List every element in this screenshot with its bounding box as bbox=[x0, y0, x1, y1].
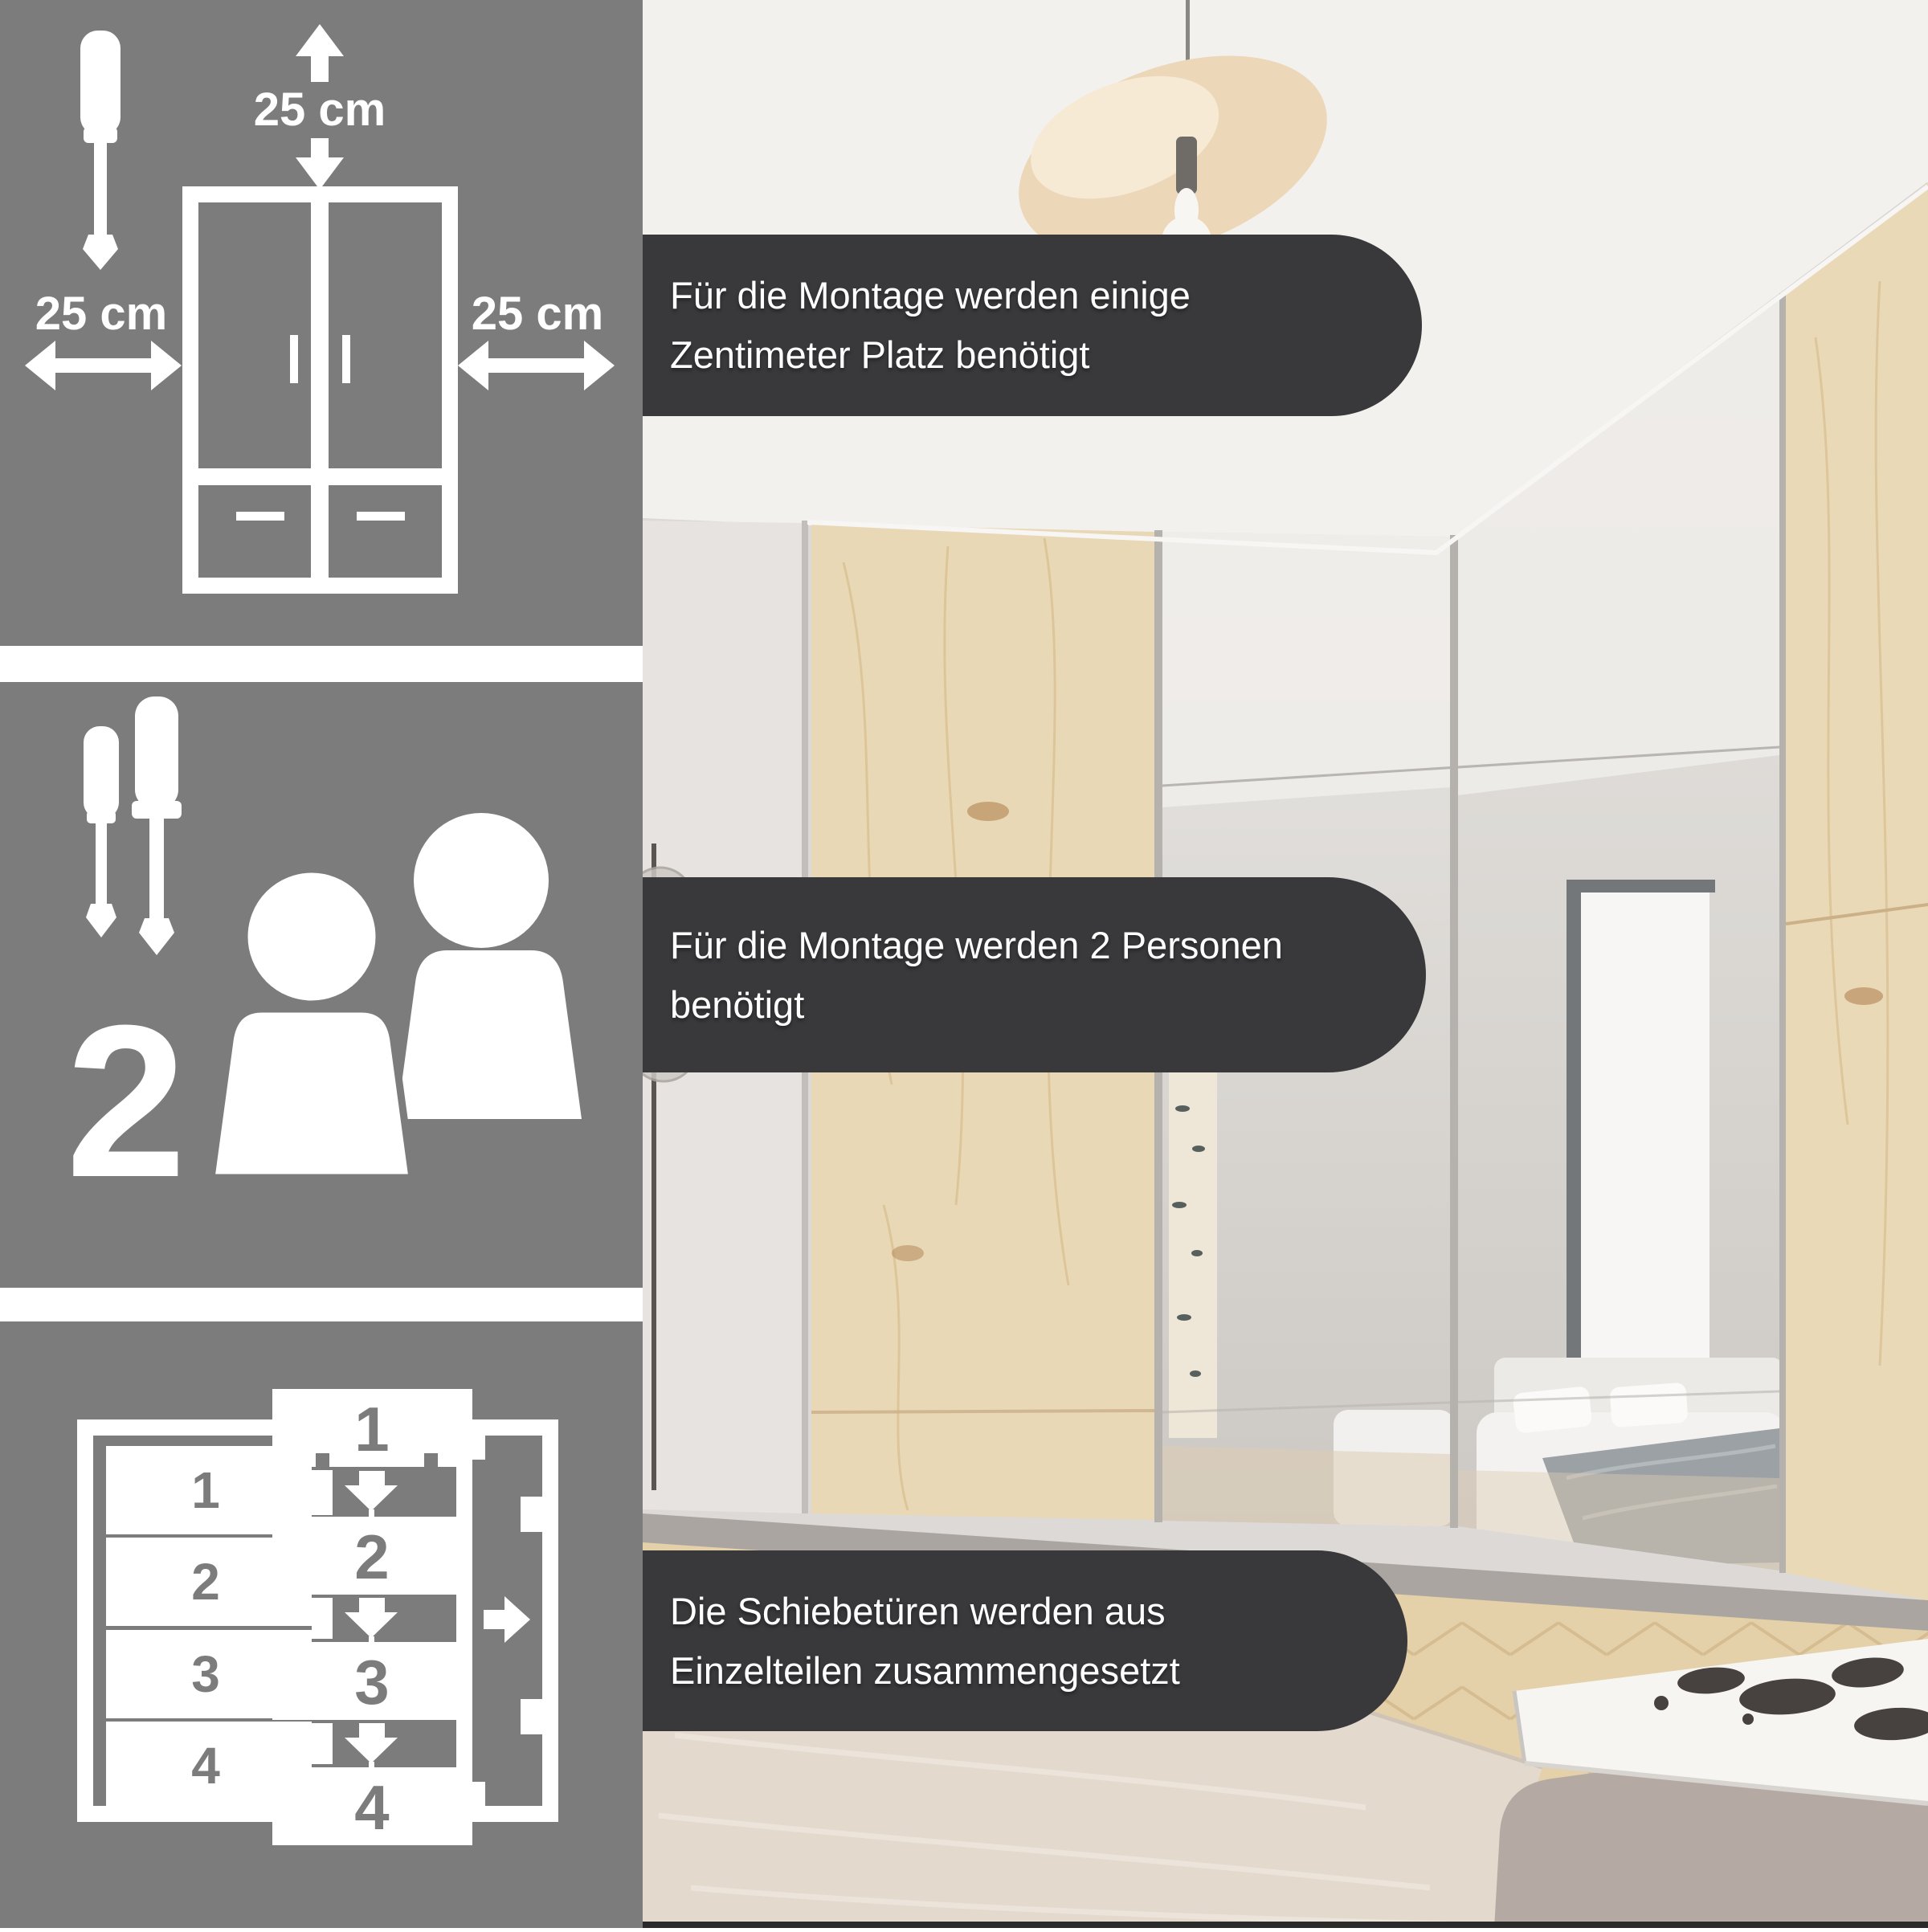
arrow-right-icon bbox=[484, 1596, 530, 1643]
part-label-2: 2 bbox=[354, 1522, 389, 1592]
slat-label-3: 3 bbox=[191, 1645, 220, 1703]
window-frame-reflection bbox=[1566, 880, 1715, 892]
banner-clearance-line1: Für die Montage werden einige bbox=[670, 266, 1422, 325]
banner-clearance-line2: Zentimeter Platz benötigt bbox=[670, 325, 1422, 385]
lamp-socket bbox=[1176, 137, 1197, 194]
banner-assembly-line2: Einzelteilen zusammengesetzt bbox=[670, 1641, 1407, 1701]
clearance-top-label: 25 cm bbox=[254, 84, 386, 136]
wardrobe-handle bbox=[290, 335, 298, 383]
clearance-pictogram: 25 cm 25 cm 25 cm bbox=[0, 0, 643, 646]
banner-persons-line1: Für die Montage werden 2 Personen bbox=[670, 916, 1426, 975]
arrow-down-icon bbox=[345, 1723, 398, 1769]
photo-bottom-strip bbox=[643, 1922, 1928, 1928]
part-label-1: 1 bbox=[354, 1394, 389, 1464]
part-notch bbox=[316, 1453, 329, 1467]
door-slats: 1 2 3 4 bbox=[106, 1446, 312, 1810]
arrow-down-icon bbox=[345, 1471, 398, 1517]
wood-seam bbox=[811, 1411, 1154, 1412]
banner-persons: Für die Montage werden 2 Personen benöti… bbox=[643, 877, 1426, 1072]
banner-assembly-line1: Die Schiebetüren werden aus bbox=[670, 1582, 1407, 1641]
clearance-right-label: 25 cm bbox=[472, 288, 603, 340]
banner-assembly: Die Schiebetüren werden aus Einzelteilen… bbox=[643, 1550, 1407, 1731]
part-label-3: 3 bbox=[354, 1647, 389, 1718]
door-rail bbox=[1779, 293, 1786, 1573]
wood-door-right bbox=[1786, 183, 1928, 1600]
panel-clearance: 25 cm 25 cm 25 cm bbox=[0, 0, 643, 646]
frame-notch bbox=[521, 1497, 545, 1532]
wood-knot bbox=[1844, 987, 1883, 1005]
door-rail bbox=[1450, 535, 1458, 1528]
slat-label-2: 2 bbox=[191, 1553, 220, 1611]
pillow-reflection bbox=[1513, 1386, 1593, 1434]
drawer-handle bbox=[357, 512, 405, 521]
assembly-diagram: 1 2 3 4 1 2 3 4 bbox=[0, 1321, 643, 1928]
arrow-down-icon bbox=[345, 1598, 398, 1644]
frame-notch bbox=[521, 1699, 545, 1734]
part-notch bbox=[424, 1453, 438, 1467]
connector-tab bbox=[312, 1723, 333, 1764]
pillow-reflection bbox=[1609, 1383, 1688, 1428]
panel-assembly: 1 2 3 4 1 2 3 4 bbox=[0, 1321, 643, 1928]
persons-count-label: 2 bbox=[66, 981, 186, 1223]
persons-pictogram: 2 bbox=[0, 682, 643, 1288]
arrow-up-icon bbox=[296, 24, 344, 82]
screwdriver-icon bbox=[132, 696, 182, 955]
wood-knot bbox=[892, 1245, 924, 1261]
arrow-left-right-icon bbox=[25, 341, 182, 390]
arrow-down-icon bbox=[296, 138, 344, 190]
wood-knot bbox=[967, 802, 1009, 821]
poster-reflection bbox=[1169, 1060, 1217, 1438]
connector-tab bbox=[312, 1598, 333, 1639]
part-label-4: 4 bbox=[354, 1772, 389, 1843]
person-icon-back bbox=[397, 813, 582, 1119]
down-arrows bbox=[345, 1471, 398, 1769]
slat-label-1: 1 bbox=[191, 1461, 220, 1519]
banner-clearance: Für die Montage werden einige Zentimeter… bbox=[643, 235, 1422, 416]
connector-tab bbox=[312, 1470, 333, 1515]
person-icon-front bbox=[211, 869, 412, 1178]
slat-label-4: 4 bbox=[191, 1737, 220, 1795]
panel-persons: 2 bbox=[0, 682, 643, 1288]
clearance-left-label: 25 cm bbox=[35, 288, 167, 340]
wardrobe-handle bbox=[342, 335, 350, 383]
drawer-handle bbox=[236, 512, 284, 521]
arrow-left-right-icon bbox=[458, 341, 615, 390]
screwdriver-icon bbox=[80, 31, 120, 270]
wardrobe-icon bbox=[190, 194, 450, 586]
banner-persons-line2: benötigt bbox=[670, 975, 1426, 1035]
screwdriver-icon bbox=[84, 726, 119, 937]
